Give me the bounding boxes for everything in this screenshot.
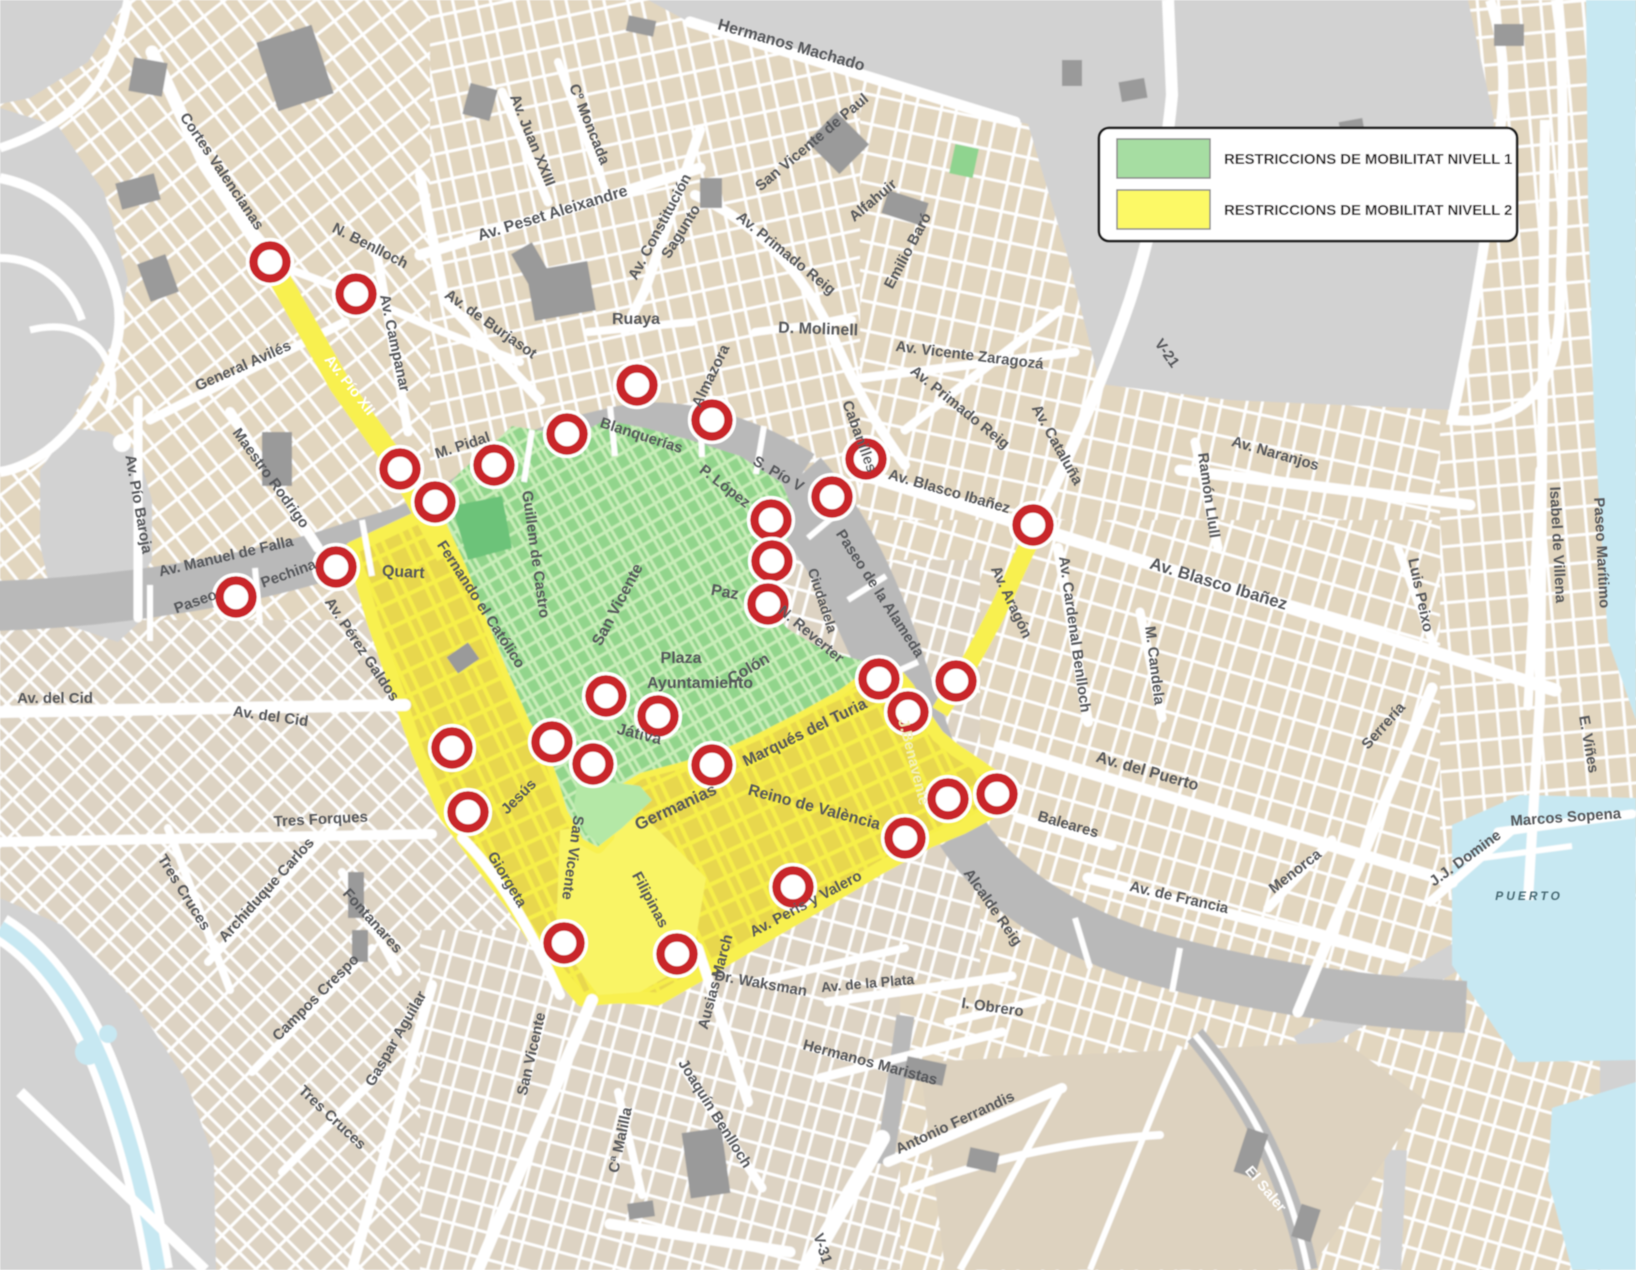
svg-text:PUERTO: PUERTO xyxy=(1495,889,1563,903)
svg-text:D. Molinell: D. Molinell xyxy=(778,320,859,340)
svg-text:RESTRICCIONS DE MOBILITAT NIVE: RESTRICCIONS DE MOBILITAT NIVELL 2 xyxy=(1224,202,1512,219)
svg-text:Quart: Quart xyxy=(381,563,425,582)
svg-text:Av. del Cid: Av. del Cid xyxy=(17,690,93,707)
svg-text:RESTRICCIONS DE MOBILITAT NIVE: RESTRICCIONS DE MOBILITAT NIVELL 1 xyxy=(1224,151,1512,168)
svg-text:Plaza: Plaza xyxy=(661,650,702,667)
svg-text:Ruaya: Ruaya xyxy=(612,311,660,328)
